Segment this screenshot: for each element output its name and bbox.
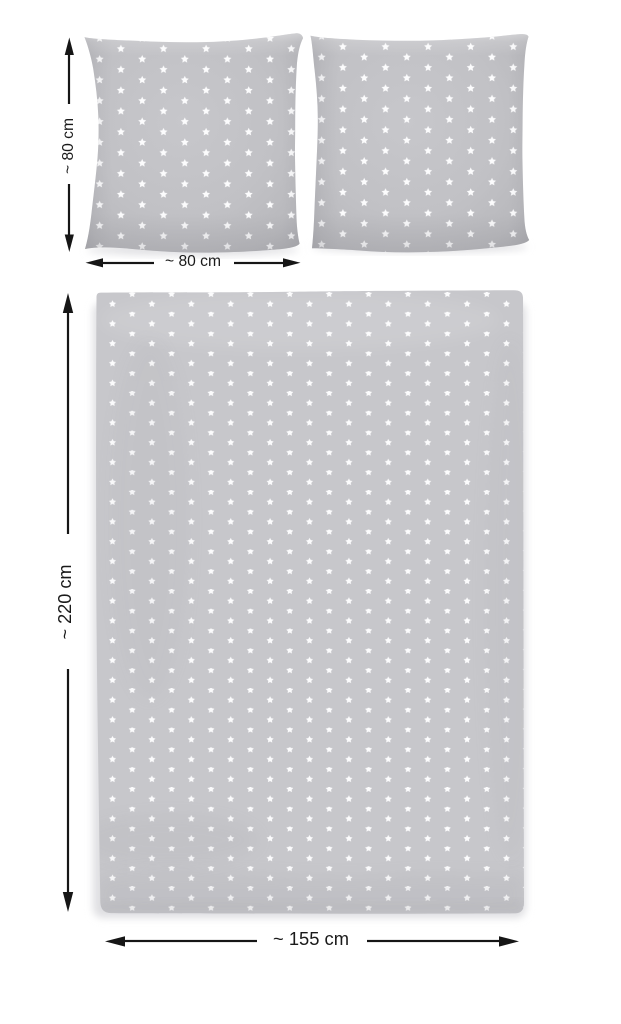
svg-text:~ 80 cm: ~ 80 cm [165,253,221,270]
svg-text:~ 155 cm: ~ 155 cm [273,929,349,949]
svg-text:~ 80 cm: ~ 80 cm [60,118,77,174]
svg-text:~ 220 cm: ~ 220 cm [55,565,75,640]
